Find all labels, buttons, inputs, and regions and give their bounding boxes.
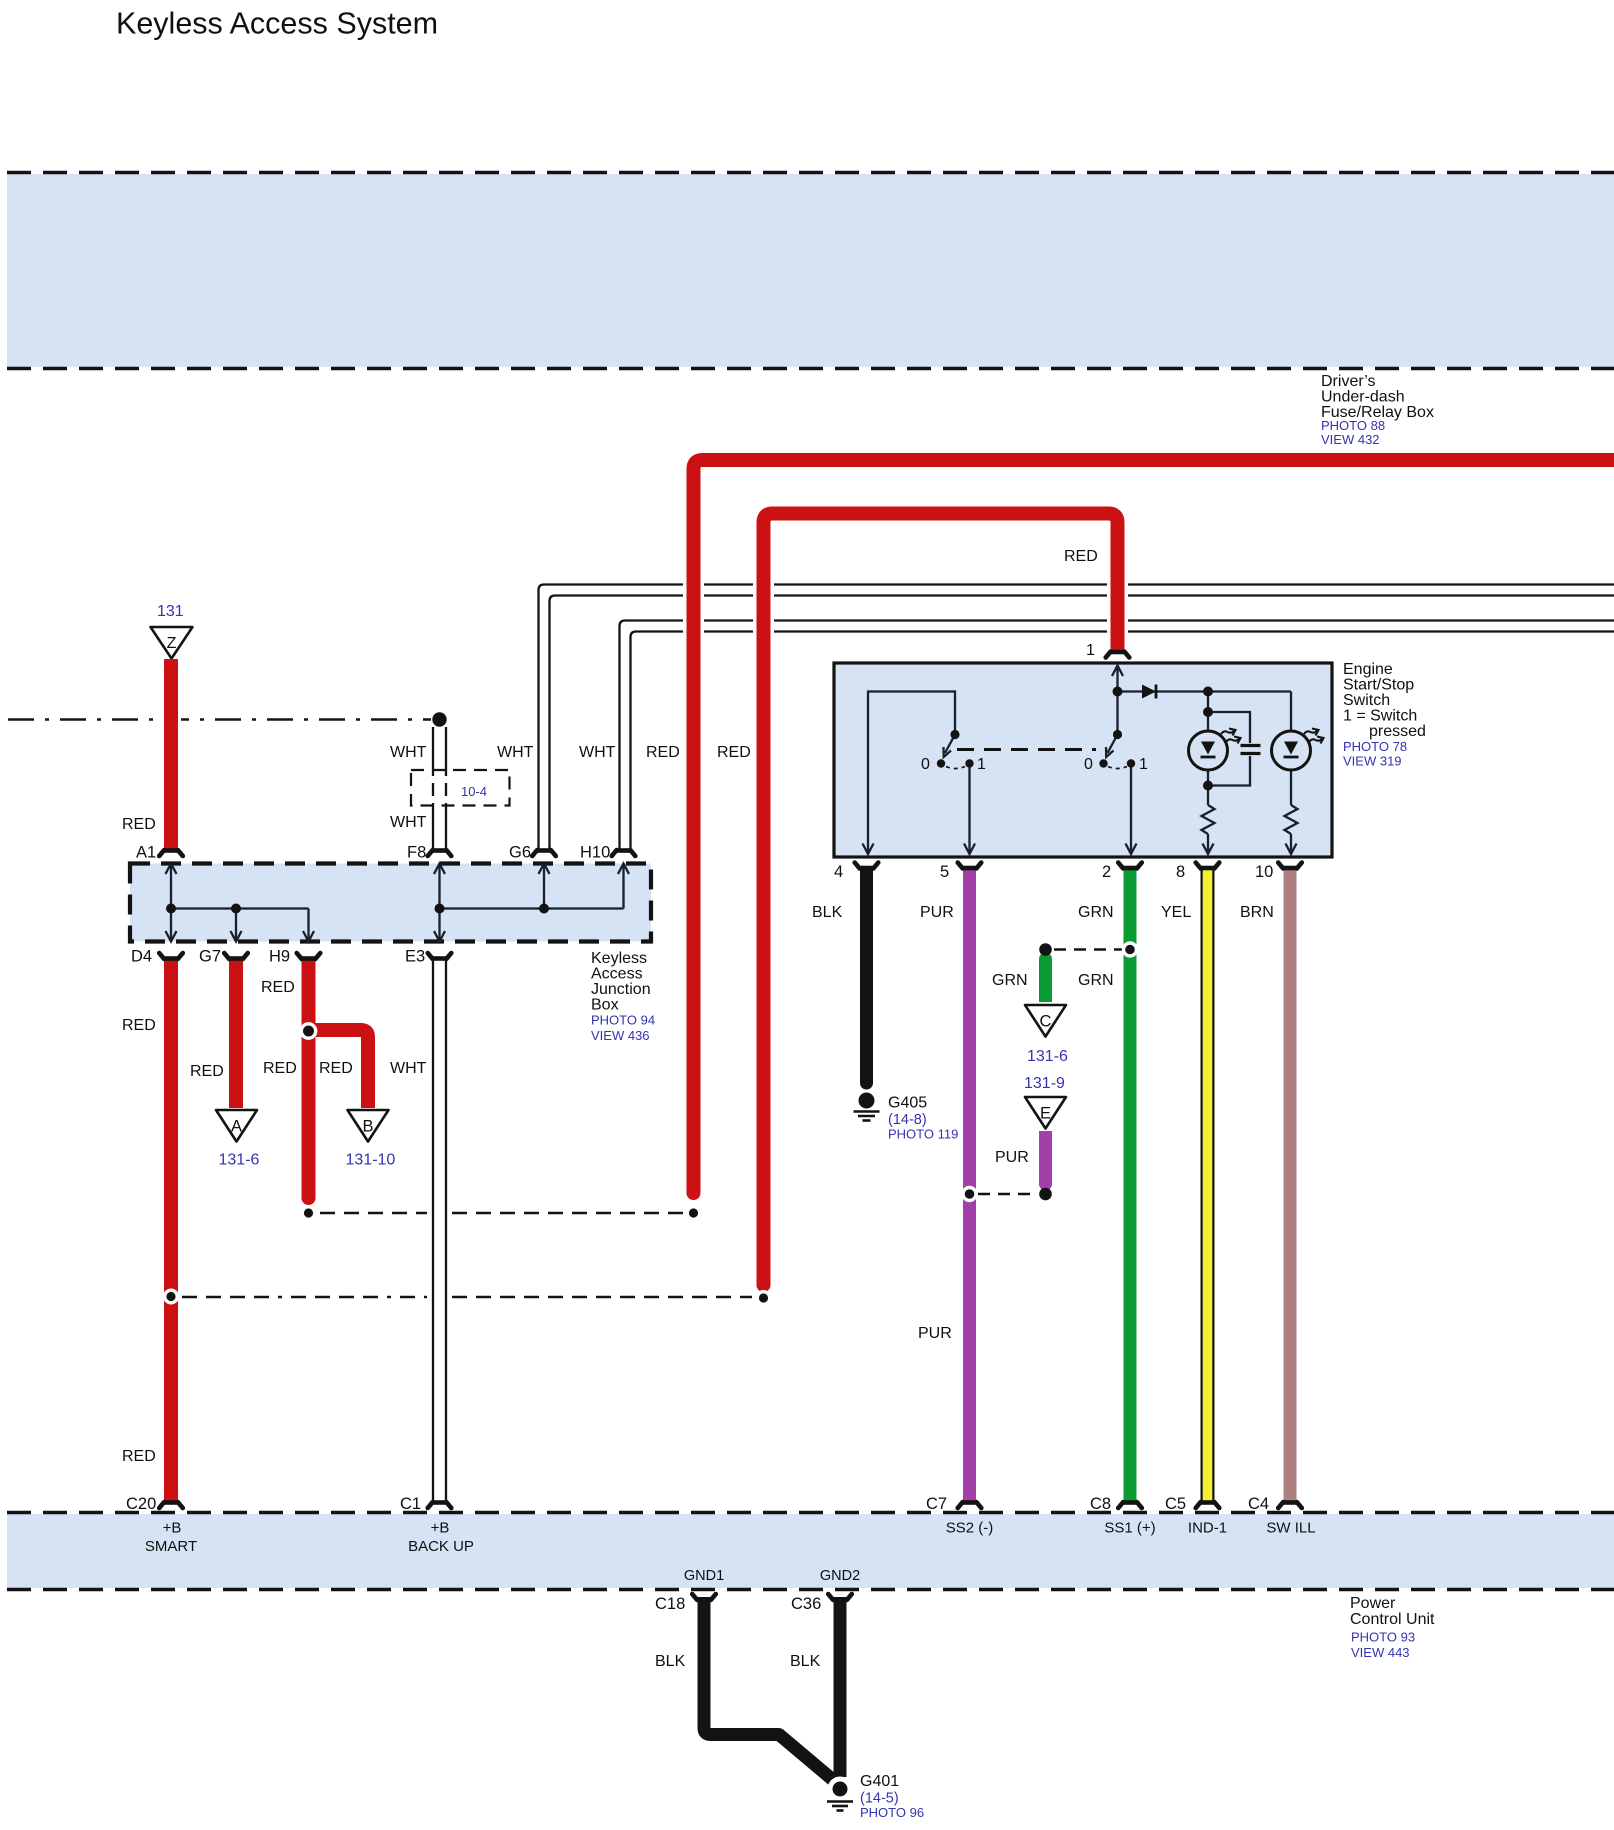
svg-text:PHOTO 78: PHOTO 78 [1343, 739, 1407, 754]
svg-text:C36: C36 [791, 1595, 821, 1613]
svg-text:SMART: SMART [145, 1538, 197, 1555]
svg-text:PUR: PUR [920, 904, 954, 921]
svg-text:RED: RED [319, 1060, 353, 1077]
svg-text:0: 0 [1084, 756, 1093, 773]
svg-text:1: 1 [1086, 642, 1095, 659]
svg-text:F8: F8 [407, 844, 426, 862]
svg-text:WHT: WHT [390, 814, 427, 831]
svg-text:Z: Z [167, 635, 177, 652]
svg-text:131-9: 131-9 [1024, 1075, 1065, 1092]
svg-text:RED: RED [122, 1448, 156, 1465]
svg-text:BLK: BLK [790, 1653, 821, 1670]
svg-text:SS1 (+): SS1 (+) [1104, 1520, 1155, 1537]
svg-text:A1: A1 [136, 844, 156, 862]
svg-text:C5: C5 [1165, 1495, 1186, 1513]
svg-text:RED: RED [190, 1063, 224, 1080]
svg-text:4: 4 [834, 863, 843, 881]
svg-text:PHOTO 93: PHOTO 93 [1351, 1630, 1415, 1645]
svg-text:WHT: WHT [390, 744, 427, 761]
svg-text:RED: RED [122, 1017, 156, 1034]
svg-text:G405: G405 [888, 1095, 927, 1112]
svg-text:RED: RED [717, 744, 751, 761]
svg-text:131-6: 131-6 [1027, 1048, 1068, 1065]
svg-text:Start/Stop: Start/Stop [1343, 677, 1414, 694]
svg-text:pressed: pressed [1369, 723, 1426, 740]
svg-text:C18: C18 [655, 1595, 685, 1613]
svg-text:C7: C7 [926, 1495, 947, 1513]
svg-text:Junction: Junction [591, 981, 651, 998]
svg-text:Access: Access [591, 966, 643, 983]
svg-text:PHOTO 88: PHOTO 88 [1321, 418, 1385, 433]
svg-text:RED: RED [646, 744, 680, 761]
svg-text:G6: G6 [509, 844, 531, 862]
svg-text:WHT: WHT [579, 744, 616, 761]
svg-text:GRN: GRN [1078, 904, 1114, 921]
svg-text:A: A [231, 1118, 242, 1136]
svg-text:1: 1 [977, 756, 986, 773]
svg-text:Box: Box [591, 997, 619, 1014]
svg-text:GRN: GRN [992, 972, 1028, 989]
svg-text:WHT: WHT [390, 1060, 427, 1077]
svg-text:C20: C20 [126, 1495, 156, 1513]
svg-text:C4: C4 [1248, 1495, 1269, 1513]
svg-text:GND2: GND2 [820, 1568, 860, 1584]
svg-text:C1: C1 [400, 1495, 421, 1513]
svg-text:Power: Power [1350, 1595, 1396, 1612]
svg-text:Switch: Switch [1343, 692, 1390, 709]
svg-text:10: 10 [1255, 863, 1273, 881]
svg-text:WHT: WHT [497, 744, 534, 761]
svg-text:PUR: PUR [918, 1325, 952, 1342]
svg-text:RED: RED [122, 816, 156, 833]
svg-text:BLK: BLK [655, 1653, 686, 1670]
svg-text:GND1: GND1 [684, 1568, 724, 1584]
svg-text:BACK UP: BACK UP [408, 1538, 474, 1555]
svg-text:PHOTO 119: PHOTO 119 [888, 1127, 958, 1142]
svg-text:+B: +B [431, 1520, 450, 1537]
svg-text:BLK: BLK [812, 904, 843, 921]
svg-text:E: E [1040, 1105, 1051, 1123]
svg-text:0: 0 [921, 756, 930, 773]
svg-text:1: 1 [1139, 756, 1148, 773]
svg-text:H10: H10 [580, 844, 610, 862]
svg-text:GRN: GRN [1078, 972, 1114, 989]
svg-text:PHOTO 96: PHOTO 96 [860, 1805, 924, 1820]
svg-text:RED: RED [263, 1060, 297, 1077]
svg-text:E3: E3 [405, 948, 425, 966]
svg-text:G401: G401 [860, 1773, 899, 1790]
svg-text:Driver’s: Driver’s [1321, 373, 1376, 390]
svg-text:131-10: 131-10 [346, 1152, 396, 1169]
svg-text:VIEW 436: VIEW 436 [591, 1028, 650, 1043]
svg-text:YEL: YEL [1161, 904, 1191, 921]
svg-text:2: 2 [1102, 863, 1111, 881]
svg-text:D4: D4 [131, 948, 152, 966]
svg-text:RED: RED [261, 979, 295, 996]
svg-text:131-6: 131-6 [219, 1152, 260, 1169]
svg-text:Under-dash: Under-dash [1321, 389, 1405, 406]
svg-text:1 = Switch: 1 = Switch [1343, 708, 1417, 725]
svg-text:G7: G7 [199, 948, 221, 966]
svg-text:Keyless Access System: Keyless Access System [116, 7, 438, 41]
svg-text:Engine: Engine [1343, 661, 1393, 678]
svg-text:8: 8 [1176, 863, 1185, 881]
svg-text:H9: H9 [269, 948, 290, 966]
svg-text:10-4: 10-4 [461, 784, 487, 799]
svg-text:5: 5 [940, 863, 949, 881]
svg-text:VIEW 443: VIEW 443 [1351, 1645, 1410, 1660]
svg-text:C: C [1040, 1013, 1052, 1031]
svg-text:Keyless: Keyless [591, 950, 647, 967]
svg-text:RED: RED [1064, 548, 1098, 565]
svg-text:SW ILL: SW ILL [1266, 1520, 1315, 1537]
svg-text:BRN: BRN [1240, 904, 1274, 921]
svg-text:Control Unit: Control Unit [1350, 1611, 1435, 1628]
svg-text:PUR: PUR [995, 1149, 1029, 1166]
svg-text:VIEW 319: VIEW 319 [1343, 754, 1402, 769]
svg-text:VIEW 432: VIEW 432 [1321, 432, 1380, 447]
svg-text:131: 131 [157, 603, 184, 620]
svg-text:PHOTO 94: PHOTO 94 [591, 1013, 655, 1028]
svg-text:SS2 (-): SS2 (-) [946, 1520, 994, 1537]
svg-text:B: B [362, 1118, 373, 1136]
svg-text:IND-1: IND-1 [1188, 1520, 1227, 1537]
svg-text:+B: +B [163, 1520, 182, 1537]
svg-text:C8: C8 [1090, 1495, 1111, 1513]
